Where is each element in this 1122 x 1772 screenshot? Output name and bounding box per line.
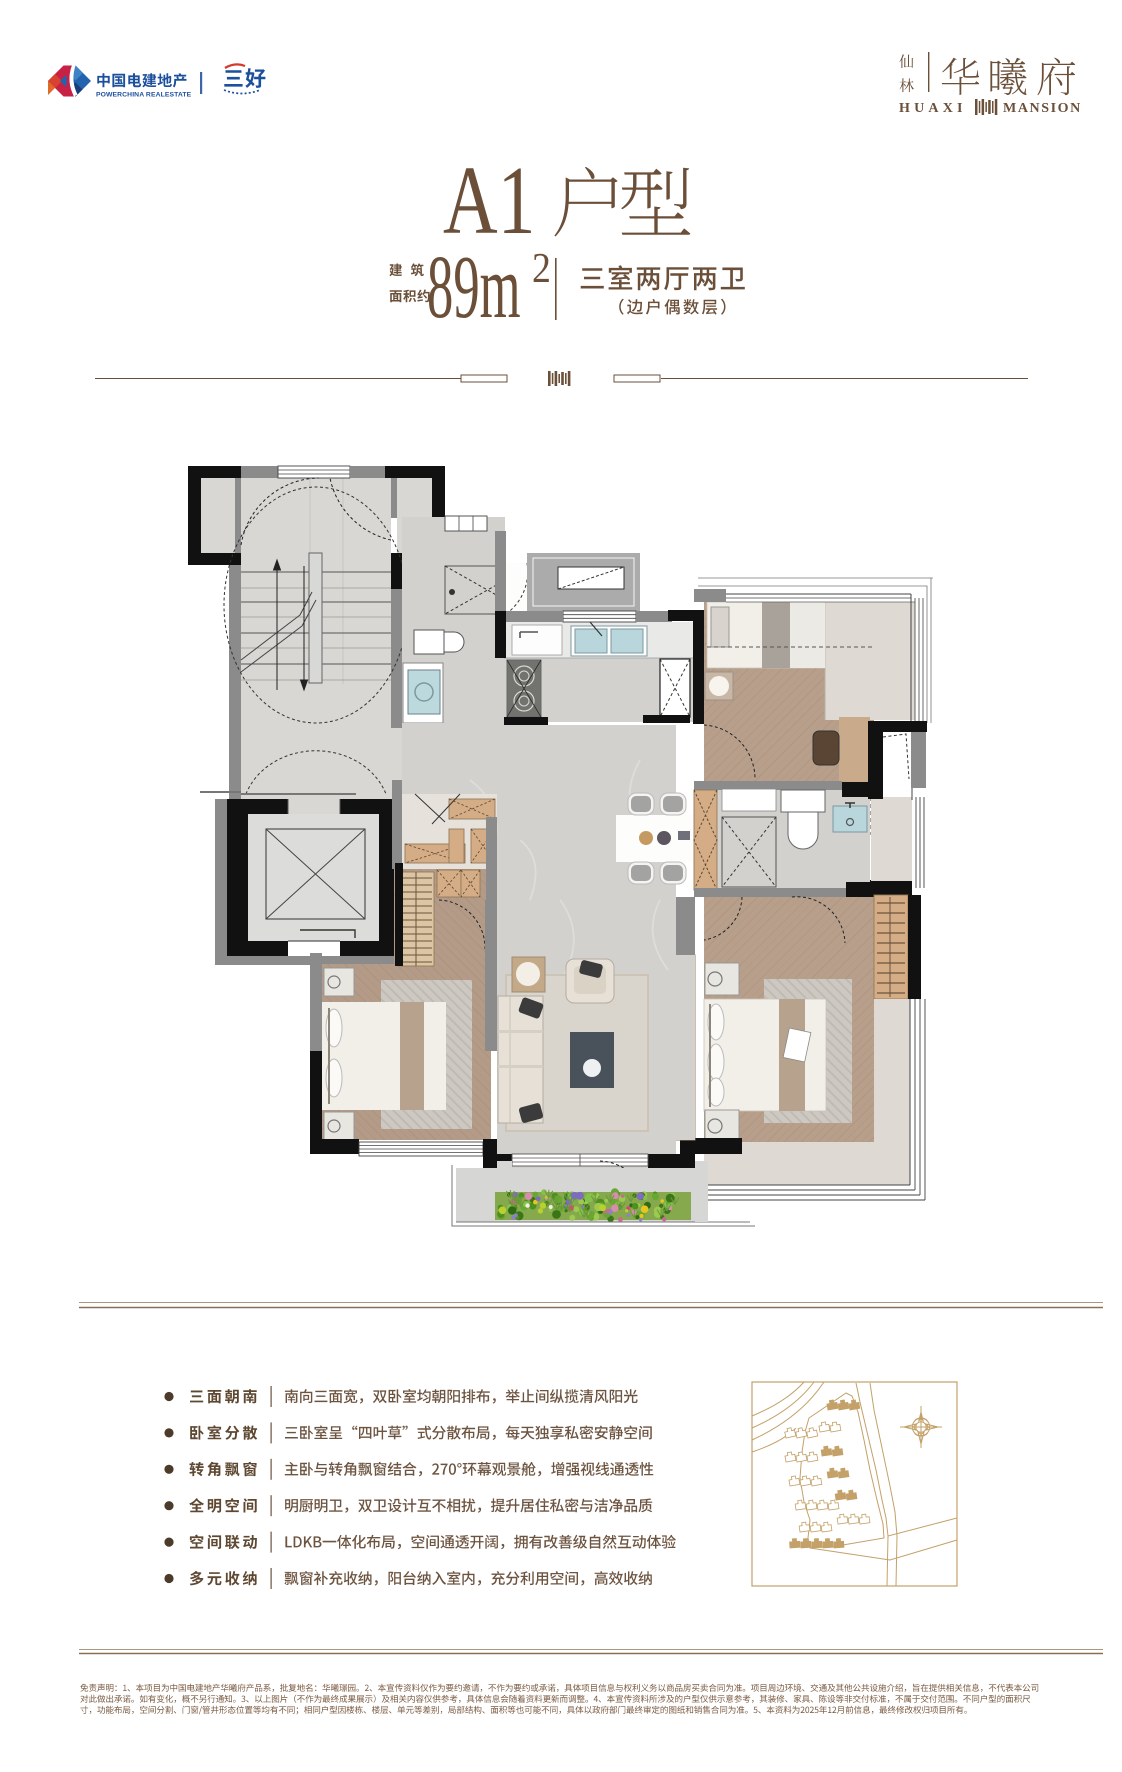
svg-text:2: 2 (532, 244, 551, 291)
svg-text:89m: 89m (427, 236, 521, 336)
svg-text:POWERCHINA REALESTATE: POWERCHINA REALESTATE (96, 92, 192, 99)
svg-text:HUAXI: HUAXI (899, 101, 967, 116)
svg-text:MANSION: MANSION (1003, 101, 1082, 116)
